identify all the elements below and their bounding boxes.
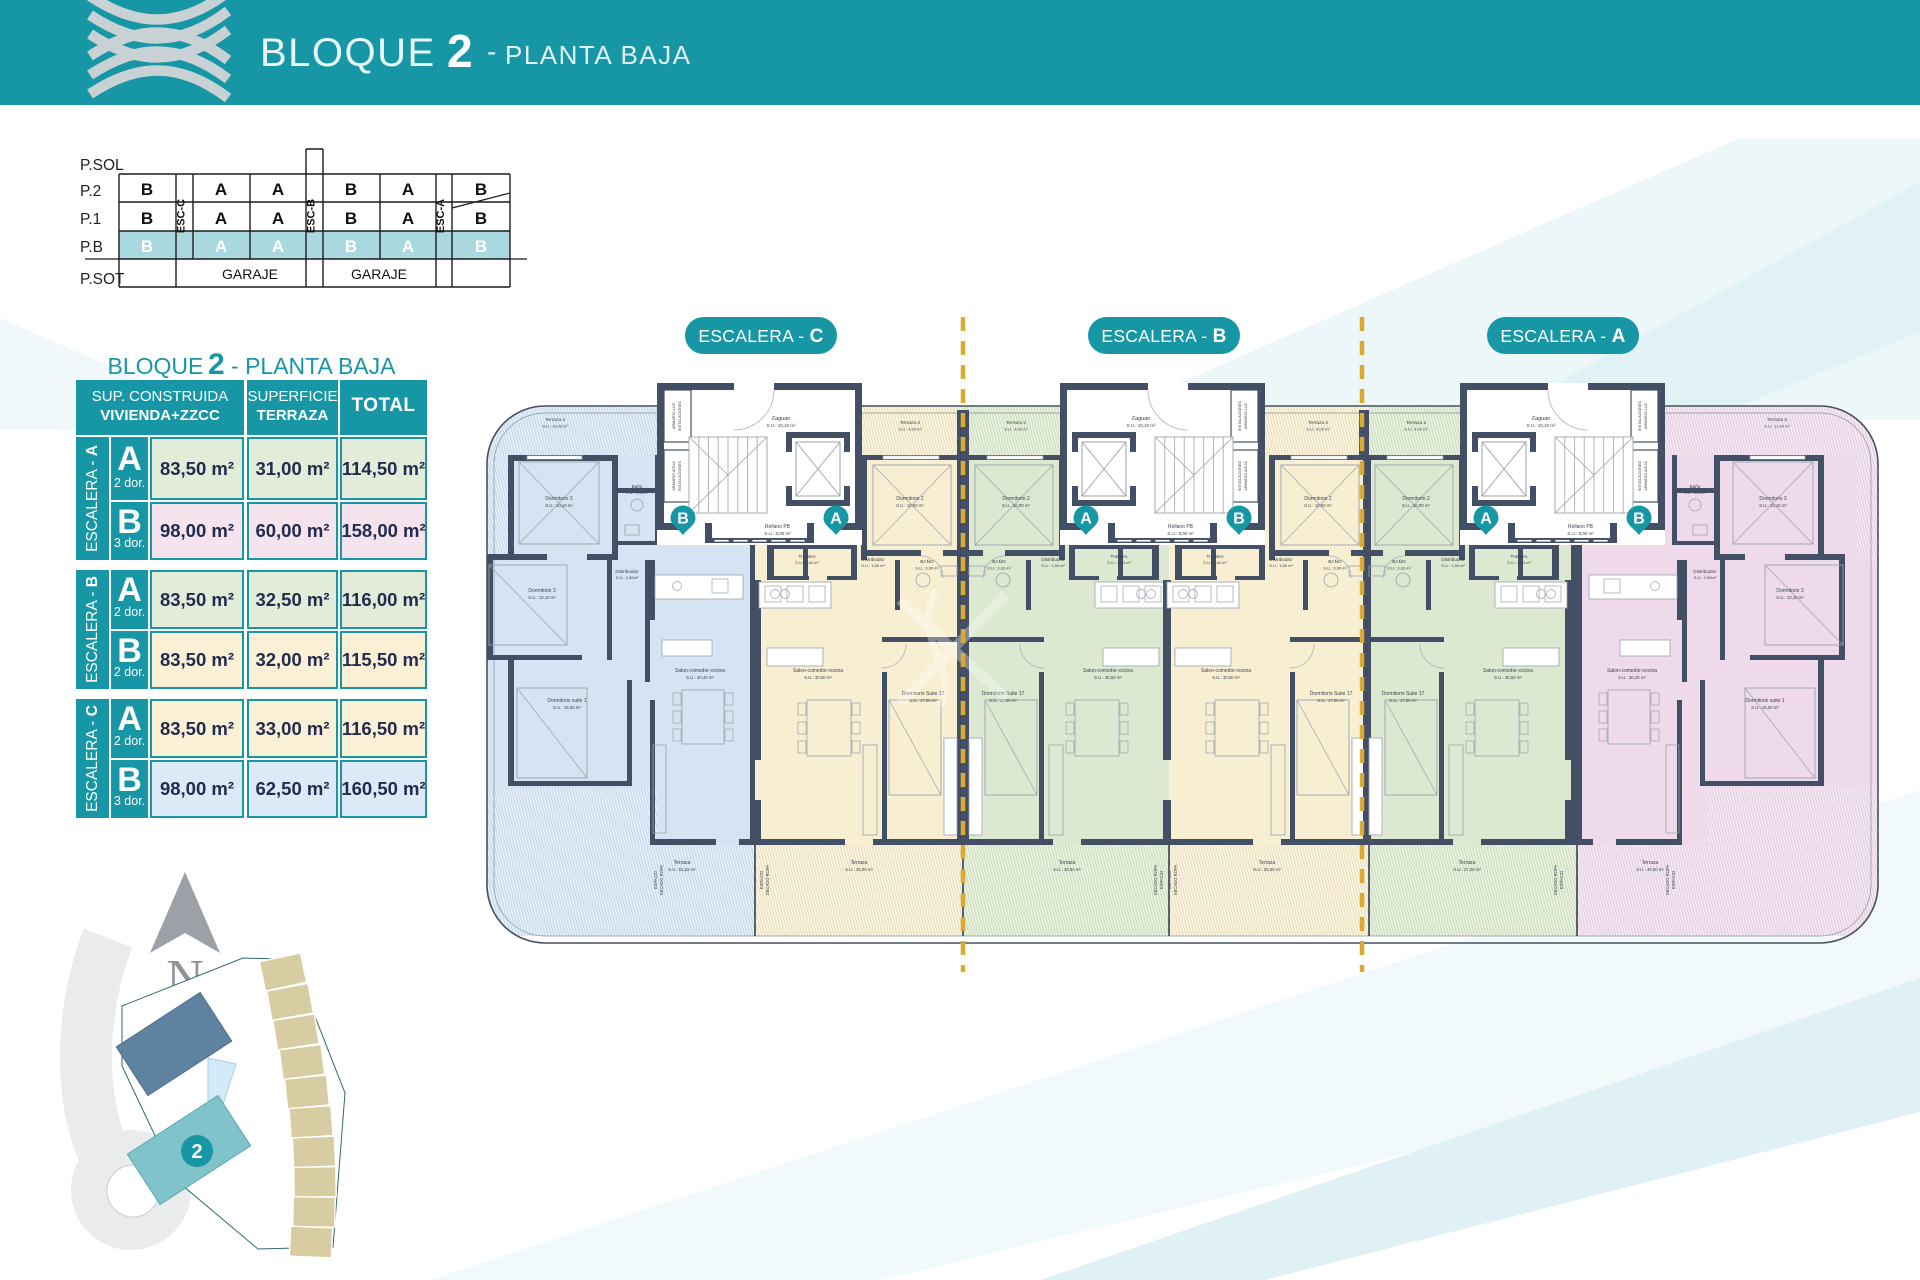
svg-text:SECADO ROPA: SECADO ROPA bbox=[1553, 865, 1558, 896]
svg-text:Distribuidor: Distribuidor bbox=[615, 569, 639, 574]
svg-text:S.U.: 1,90 m²: S.U.: 1,90 m² bbox=[861, 563, 885, 568]
svg-text:Rellano PB: Rellano PB bbox=[765, 524, 791, 530]
svg-text:PLANTA BAJA: PLANTA BAJA bbox=[505, 40, 692, 70]
svg-text:P.B: P.B bbox=[80, 239, 103, 256]
svg-text:A: A bbox=[1080, 511, 1092, 528]
svg-text:S.U.: 49,50 m²: S.U.: 49,50 m² bbox=[1636, 867, 1664, 872]
svg-text:Salon-comedor-cocina: Salon-comedor-cocina bbox=[1483, 668, 1533, 674]
svg-text:Baño: Baño bbox=[632, 484, 643, 489]
svg-text:S.U.: 10,00 m²: S.U.: 10,00 m² bbox=[1002, 503, 1030, 508]
svg-text:Rellano PB: Rellano PB bbox=[1568, 524, 1594, 530]
svg-text:A: A bbox=[402, 237, 414, 256]
svg-text:S.U.: 17,00 m²: S.U.: 17,00 m² bbox=[909, 698, 937, 703]
svg-text:INSTALACIONES: INSTALACIONES bbox=[1238, 400, 1242, 431]
svg-text:ARMARIO LUZ: ARMARIO LUZ bbox=[1644, 402, 1648, 429]
svg-text:S.U.: 3,30m²: S.U.: 3,30m² bbox=[626, 490, 649, 495]
svg-text:Dormitorio Suite 17: Dormitorio Suite 17 bbox=[1310, 691, 1353, 697]
svg-text:Terraza 2: Terraza 2 bbox=[545, 417, 565, 423]
svg-text:S.U.: 27,00 m²: S.U.: 27,00 m² bbox=[1453, 867, 1481, 872]
svg-text:Terraza: Terraza bbox=[1059, 860, 1076, 866]
svg-text:S.U.: 4,00 m²: S.U.: 4,00 m² bbox=[1306, 427, 1330, 432]
svg-text:S.U.: 51,52 m²: S.U.: 51,52 m² bbox=[668, 867, 696, 872]
svg-text:S.U.: 30,40 m²: S.U.: 30,40 m² bbox=[1618, 675, 1646, 680]
svg-text:B: B bbox=[1233, 511, 1245, 528]
svg-text:S.U.: 4,00 m²: S.U.: 4,00 m² bbox=[1404, 427, 1428, 432]
svg-text:S.U.: 17,00 m²: S.U.: 17,00 m² bbox=[1389, 698, 1417, 703]
svg-text:ESPACIO: ESPACIO bbox=[759, 870, 764, 889]
svg-text:S.U.: 28,50 m²: S.U.: 28,50 m² bbox=[1053, 867, 1081, 872]
svg-text:B: B bbox=[345, 237, 357, 256]
svg-text:S.U.: 3,30 m²: S.U.: 3,30 m² bbox=[915, 566, 939, 571]
svg-text:S.U.: 30,50 m²: S.U.: 30,50 m² bbox=[1094, 675, 1122, 680]
svg-text:ESC-A: ESC-A bbox=[435, 199, 447, 233]
svg-text:S.U.: 1,40 m²: S.U.: 1,40 m² bbox=[1507, 560, 1531, 565]
svg-text:B: B bbox=[1633, 511, 1645, 528]
svg-text:ESPACIO: ESPACIO bbox=[1671, 870, 1676, 889]
svg-text:Zaguan: Zaguan bbox=[772, 416, 791, 422]
svg-text:Distribuidor: Distribuidor bbox=[861, 557, 885, 562]
svg-text:Distribuidor: Distribuidor bbox=[1041, 557, 1065, 562]
svg-text:S.U.: 10,10 m²: S.U.: 10,10 m² bbox=[1126, 423, 1156, 428]
svg-text:Terraza: Terraza bbox=[1259, 860, 1276, 866]
svg-text:ARMARIO AGUA: ARMARIO AGUA bbox=[1644, 461, 1648, 491]
svg-text:S.U.: 11,00 m²: S.U.: 11,00 m² bbox=[542, 424, 568, 429]
svg-text:Salon-comedor-cocina: Salon-comedor-cocina bbox=[675, 668, 725, 674]
svg-text:Dormitorio 3: Dormitorio 3 bbox=[545, 496, 572, 502]
svg-text:ESC-C: ESC-C bbox=[176, 199, 188, 233]
svg-text:Rellano PB: Rellano PB bbox=[1168, 524, 1194, 530]
svg-text:SECADO ROPA: SECADO ROPA bbox=[765, 865, 770, 896]
svg-text:S.U.: 28,00 m²: S.U.: 28,00 m² bbox=[1253, 867, 1281, 872]
svg-text:A: A bbox=[215, 180, 227, 199]
svg-text:Dormitorio Suite 17: Dormitorio Suite 17 bbox=[1382, 691, 1425, 697]
svg-text:S.U.: 30,50 m²: S.U.: 30,50 m² bbox=[1212, 675, 1240, 680]
svg-text:Dormitorio 3: Dormitorio 3 bbox=[1776, 588, 1803, 594]
svg-text:Terraza: Terraza bbox=[674, 860, 691, 866]
svg-text:SECADO ROPA: SECADO ROPA bbox=[1173, 865, 1178, 896]
svg-text:-: - bbox=[487, 36, 496, 67]
svg-text:2: 2 bbox=[191, 1141, 202, 1163]
svg-text:Distribuidor: Distribuidor bbox=[1269, 557, 1293, 562]
svg-text:INSTALACIONES: INSTALACIONES bbox=[678, 460, 682, 491]
svg-text:Terraza: Terraza bbox=[1459, 860, 1476, 866]
svg-text:A: A bbox=[272, 209, 284, 228]
svg-text:A: A bbox=[215, 237, 227, 256]
svg-text:A: A bbox=[402, 209, 414, 228]
svg-text:ESPACIO: ESPACIO bbox=[653, 870, 658, 889]
svg-text:INSTALACIONES: INSTALACIONES bbox=[678, 400, 682, 431]
svg-text:S.U.: 3,30 m²: S.U.: 3,30 m² bbox=[1323, 566, 1347, 571]
svg-text:ESPACIO: ESPACIO bbox=[1559, 870, 1564, 889]
svg-text:A: A bbox=[272, 237, 284, 256]
svg-text:S.U.: 11,00 m²: S.U.: 11,00 m² bbox=[1764, 424, 1790, 429]
svg-text:A: A bbox=[215, 209, 227, 228]
svg-text:B: B bbox=[345, 180, 357, 199]
svg-text:Trastero: Trastero bbox=[1207, 554, 1224, 559]
svg-text:Zaguan: Zaguan bbox=[1532, 416, 1551, 422]
svg-text:S.U.: 1,90 m²: S.U.: 1,90 m² bbox=[1041, 563, 1065, 568]
svg-text:BAÑO: BAÑO bbox=[992, 558, 1006, 565]
svg-text:ESCALERA - C: ESCALERA - C bbox=[698, 326, 823, 347]
svg-text:S.U.: 10,00 m²: S.U.: 10,00 m² bbox=[896, 503, 924, 508]
svg-text:Dormitorio 3: Dormitorio 3 bbox=[528, 588, 555, 594]
svg-text:S.U.: 1,40 m²: S.U.: 1,40 m² bbox=[1107, 560, 1131, 565]
svg-text:Salon-comedor-cocina: Salon-comedor-cocina bbox=[1201, 668, 1251, 674]
svg-text:S.U.: 8,00 m²: S.U.: 8,00 m² bbox=[1567, 531, 1594, 536]
svg-text:S.U.: 30,50 m²: S.U.: 30,50 m² bbox=[1494, 675, 1522, 680]
svg-text:ESPACIO: ESPACIO bbox=[1159, 870, 1164, 889]
svg-text:S.U.: 4,00 m²: S.U.: 4,00 m² bbox=[898, 427, 922, 432]
svg-text:B: B bbox=[141, 237, 153, 256]
svg-text:Terraza 2: Terraza 2 bbox=[1006, 420, 1026, 426]
svg-text:S.U.: 10,00 m²: S.U.: 10,00 m² bbox=[1402, 503, 1430, 508]
svg-text:SECADO ROPA: SECADO ROPA bbox=[1153, 865, 1158, 896]
svg-text:GARAJE: GARAJE bbox=[222, 266, 278, 282]
svg-text:P.SOT: P.SOT bbox=[80, 271, 125, 288]
svg-text:Distribuidor: Distribuidor bbox=[1441, 557, 1465, 562]
svg-text:Dormitorio suite 1: Dormitorio suite 1 bbox=[1745, 698, 1784, 704]
svg-text:S.U.: 10,00 m²: S.U.: 10,00 m² bbox=[1304, 503, 1332, 508]
svg-text:B: B bbox=[141, 180, 153, 199]
svg-text:Baño: Baño bbox=[1690, 484, 1701, 489]
svg-text:S.U.: 30,40 m²: S.U.: 30,40 m² bbox=[686, 675, 714, 680]
svg-text:S.U.: 3,30 m²: S.U.: 3,30 m² bbox=[987, 566, 1011, 571]
svg-text:ARMARIO AGUA: ARMARIO AGUA bbox=[672, 461, 676, 491]
svg-text:Terraza: Terraza bbox=[1642, 860, 1659, 866]
svg-text:INSTALACIONES: INSTALACIONES bbox=[1638, 460, 1642, 491]
svg-text:Zaguan: Zaguan bbox=[1132, 416, 1151, 422]
svg-text:S.U.: 10,10 m²: S.U.: 10,10 m² bbox=[528, 595, 556, 600]
svg-text:S.U.: 10,10 m²: S.U.: 10,10 m² bbox=[1526, 423, 1556, 428]
svg-text:S.U.: 1,40 m²: S.U.: 1,40 m² bbox=[795, 560, 819, 565]
svg-text:ARMARIO LUZ: ARMARIO LUZ bbox=[672, 402, 676, 429]
svg-text:B: B bbox=[141, 209, 153, 228]
svg-text:Terraza 2: Terraza 2 bbox=[1406, 420, 1426, 426]
svg-text:S.U.: 1,90 m²: S.U.: 1,90 m² bbox=[1441, 563, 1465, 568]
svg-text:Terraza 2: Terraza 2 bbox=[1767, 417, 1787, 423]
svg-text:SECADO ROPA: SECADO ROPA bbox=[659, 865, 664, 896]
svg-text:Terraza 2: Terraza 2 bbox=[1308, 420, 1328, 426]
svg-text:S.U.: 1,40 m²: S.U.: 1,40 m² bbox=[1203, 560, 1227, 565]
svg-text:2: 2 bbox=[447, 25, 473, 77]
svg-text:Dormitorio 3: Dormitorio 3 bbox=[1759, 496, 1786, 502]
svg-text:Dormitorio 2: Dormitorio 2 bbox=[1304, 496, 1331, 502]
svg-text:P.1: P.1 bbox=[80, 211, 101, 228]
svg-text:S.U.: 10,10 m²: S.U.: 10,10 m² bbox=[545, 503, 573, 508]
svg-text:INSTALACIONES: INSTALACIONES bbox=[1238, 460, 1242, 491]
svg-text:A: A bbox=[272, 180, 284, 199]
svg-text:ARMARIO AGUA: ARMARIO AGUA bbox=[1244, 461, 1248, 491]
svg-text:S.U.: 4,00 m²: S.U.: 4,00 m² bbox=[1004, 427, 1028, 432]
svg-text:BLOQUE: BLOQUE bbox=[260, 31, 436, 75]
svg-text:S.U.: 3,30 m²: S.U.: 3,30 m² bbox=[1387, 566, 1411, 571]
svg-text:S.U.: 8,00 m²: S.U.: 8,00 m² bbox=[1167, 531, 1194, 536]
svg-text:GARAJE: GARAJE bbox=[351, 266, 407, 282]
svg-text:B: B bbox=[677, 511, 689, 528]
svg-text:B: B bbox=[475, 237, 487, 256]
svg-text:Trastero: Trastero bbox=[799, 554, 816, 559]
svg-text:S.U.: 8,00 m²: S.U.: 8,00 m² bbox=[764, 531, 791, 536]
svg-text:P.2: P.2 bbox=[80, 183, 101, 200]
svg-text:ESCALERA - B: ESCALERA - B bbox=[1101, 326, 1226, 347]
svg-text:B: B bbox=[345, 209, 357, 228]
svg-text:Trastero: Trastero bbox=[1111, 554, 1128, 559]
svg-text:S.U.: 1,90 m²: S.U.: 1,90 m² bbox=[1269, 563, 1293, 568]
svg-text:S.U.: 25,00 m²: S.U.: 25,00 m² bbox=[845, 867, 873, 872]
svg-text:S.U.: 2,80m²: S.U.: 2,80m² bbox=[1694, 575, 1717, 580]
svg-text:BAÑO: BAÑO bbox=[920, 558, 934, 565]
svg-text:A: A bbox=[1480, 511, 1492, 528]
svg-text:S.U.: 10,10 m²: S.U.: 10,10 m² bbox=[1759, 503, 1787, 508]
svg-text:BAÑO: BAÑO bbox=[1328, 558, 1342, 565]
svg-text:A: A bbox=[830, 511, 842, 528]
svg-text:A: A bbox=[402, 180, 414, 199]
svg-text:S.U.: 10,10 m²: S.U.: 10,10 m² bbox=[766, 423, 796, 428]
svg-text:ESC-B: ESC-B bbox=[306, 199, 318, 233]
svg-text:S.U.: 17,00 m²: S.U.: 17,00 m² bbox=[1317, 698, 1345, 703]
svg-text:B: B bbox=[475, 180, 487, 199]
svg-text:SECADO ROPA: SECADO ROPA bbox=[1665, 865, 1670, 896]
svg-text:S.U.: 3,30m²: S.U.: 3,30m² bbox=[1684, 490, 1707, 495]
svg-text:S.U.: 15,50 m²: S.U.: 15,50 m² bbox=[553, 705, 581, 710]
svg-text:Terraza: Terraza bbox=[851, 860, 868, 866]
svg-text:S.U.: 15,50 m²: S.U.: 15,50 m² bbox=[1751, 705, 1779, 710]
svg-text:Dormitorio suite 1: Dormitorio suite 1 bbox=[547, 698, 586, 704]
svg-text:Distribuidor: Distribuidor bbox=[1693, 569, 1717, 574]
svg-text:Dormitorio 2: Dormitorio 2 bbox=[1402, 496, 1429, 502]
svg-text:B: B bbox=[475, 209, 487, 228]
svg-text:ESCALERA - A: ESCALERA - A bbox=[1500, 326, 1625, 347]
svg-text:Salon-comedor-cocina: Salon-comedor-cocina bbox=[1083, 668, 1133, 674]
svg-text:P.SOL: P.SOL bbox=[80, 157, 124, 174]
svg-text:Salon-comedor-cocina: Salon-comedor-cocina bbox=[793, 668, 843, 674]
svg-text:S.U.: 10,10 m²: S.U.: 10,10 m² bbox=[1776, 595, 1804, 600]
svg-text:Trastero: Trastero bbox=[1511, 554, 1528, 559]
svg-text:INSTALACIONES: INSTALACIONES bbox=[1638, 400, 1642, 431]
svg-text:BAÑO: BAÑO bbox=[1392, 558, 1406, 565]
svg-text:S.U.: 30,50 m²: S.U.: 30,50 m² bbox=[804, 675, 832, 680]
svg-text:ARMARIO LUZ: ARMARIO LUZ bbox=[1244, 402, 1248, 429]
svg-text:Salon-comedor-cocina: Salon-comedor-cocina bbox=[1607, 668, 1657, 674]
svg-text:Dormitorio 2: Dormitorio 2 bbox=[1002, 496, 1029, 502]
svg-text:Terraza 2: Terraza 2 bbox=[900, 420, 920, 426]
svg-text:S.U.: 2,80m²: S.U.: 2,80m² bbox=[616, 575, 639, 580]
svg-text:Dormitorio 2: Dormitorio 2 bbox=[896, 496, 923, 502]
